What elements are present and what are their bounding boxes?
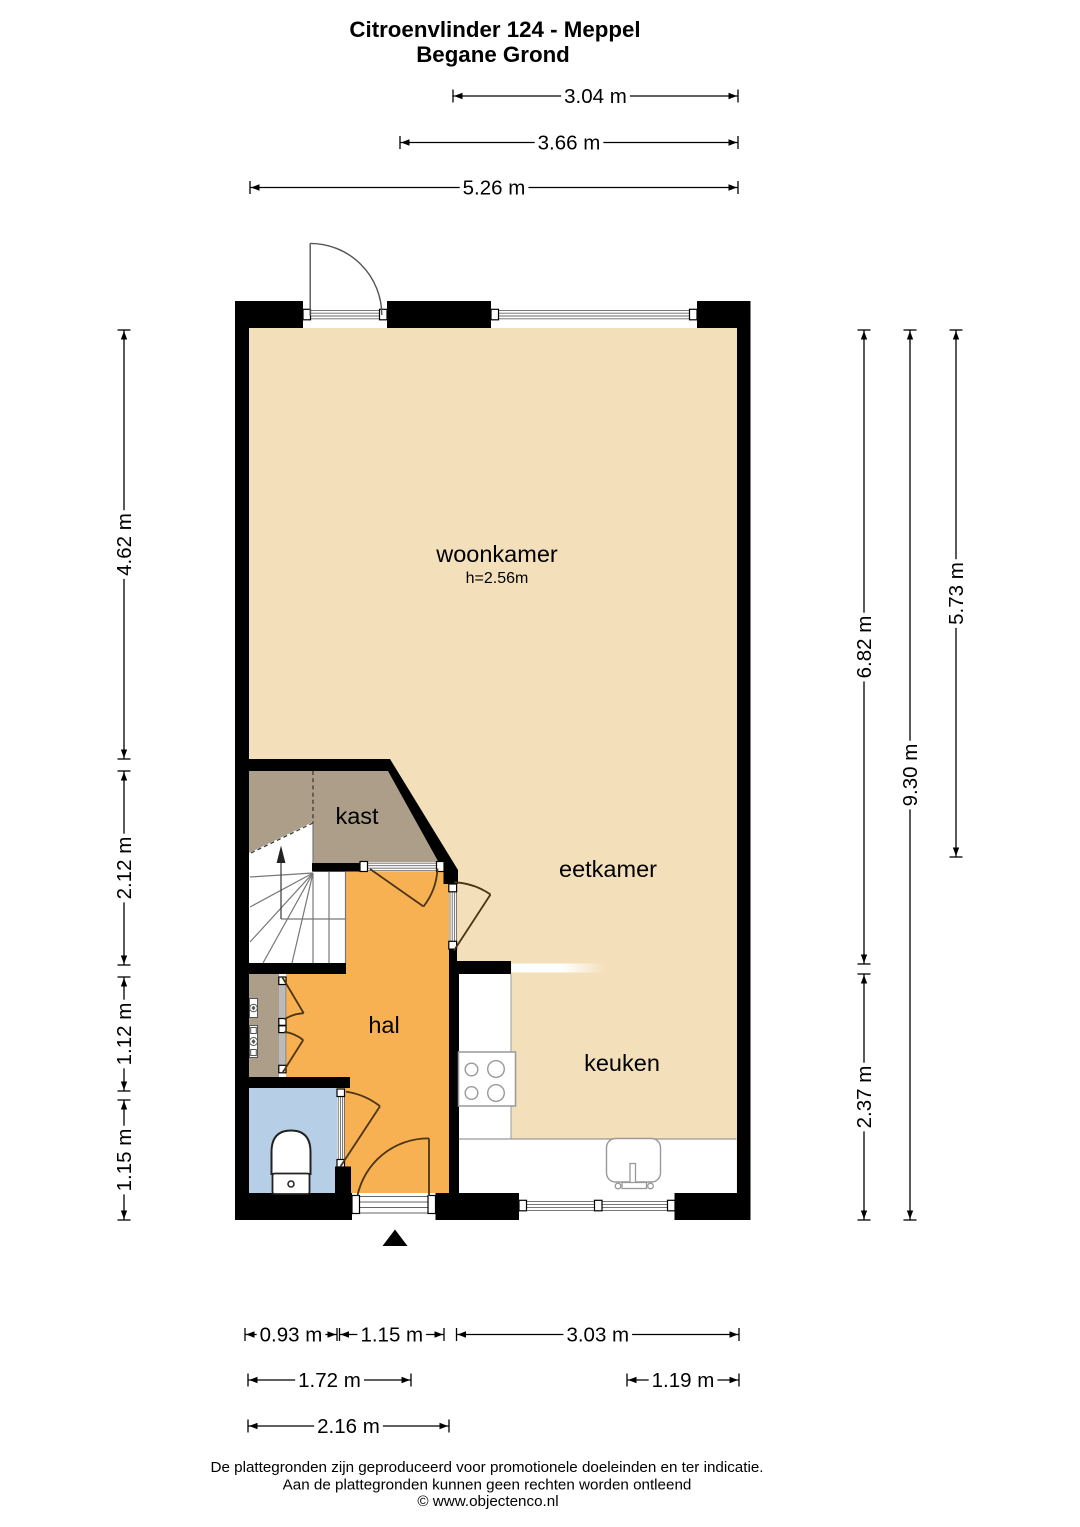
- svg-text:keuken: keuken: [584, 1050, 660, 1076]
- svg-text:Begane Grond: Begane Grond: [416, 42, 570, 67]
- svg-text:1.72 m: 1.72 m: [298, 1369, 361, 1392]
- svg-text:1.12 m: 1.12 m: [113, 1003, 136, 1066]
- svg-text:kast: kast: [335, 803, 379, 829]
- svg-text:h=2.56m: h=2.56m: [466, 570, 529, 587]
- svg-text:1.15 m: 1.15 m: [113, 1129, 136, 1192]
- svg-text:5.26 m: 5.26 m: [463, 177, 526, 200]
- svg-text:woonkamer: woonkamer: [435, 541, 558, 567]
- svg-text:hal: hal: [368, 1012, 399, 1038]
- svg-text:Aan de plattegronden kunnen ge: Aan de plattegronden kunnen geen rechten…: [283, 1477, 692, 1494]
- svg-text:3.04 m: 3.04 m: [564, 85, 627, 108]
- svg-text:0.93 m: 0.93 m: [260, 1324, 323, 1347]
- svg-text:6.82 m: 6.82 m: [853, 616, 876, 679]
- svg-text:1.19 m: 1.19 m: [652, 1369, 715, 1392]
- svg-text:© www.objectenco.nl: © www.objectenco.nl: [417, 1493, 558, 1510]
- svg-text:4.62 m: 4.62 m: [113, 513, 136, 576]
- svg-text:2.37 m: 2.37 m: [853, 1066, 876, 1129]
- svg-text:2.12 m: 2.12 m: [113, 837, 136, 900]
- svg-text:eetkamer: eetkamer: [559, 856, 657, 882]
- svg-text:2.16 m: 2.16 m: [317, 1415, 380, 1438]
- svg-text:3.66 m: 3.66 m: [538, 132, 601, 155]
- svg-text:5.73 m: 5.73 m: [945, 562, 968, 625]
- svg-text:3.03 m: 3.03 m: [566, 1324, 629, 1347]
- svg-text:De plattegronden zijn geproduc: De plattegronden zijn geproduceerd voor …: [210, 1459, 763, 1476]
- svg-text:Citroenvlinder 124 - Meppel: Citroenvlinder 124 - Meppel: [349, 17, 640, 42]
- svg-text:1.15 m: 1.15 m: [360, 1324, 423, 1347]
- svg-text:9.30 m: 9.30 m: [899, 744, 922, 807]
